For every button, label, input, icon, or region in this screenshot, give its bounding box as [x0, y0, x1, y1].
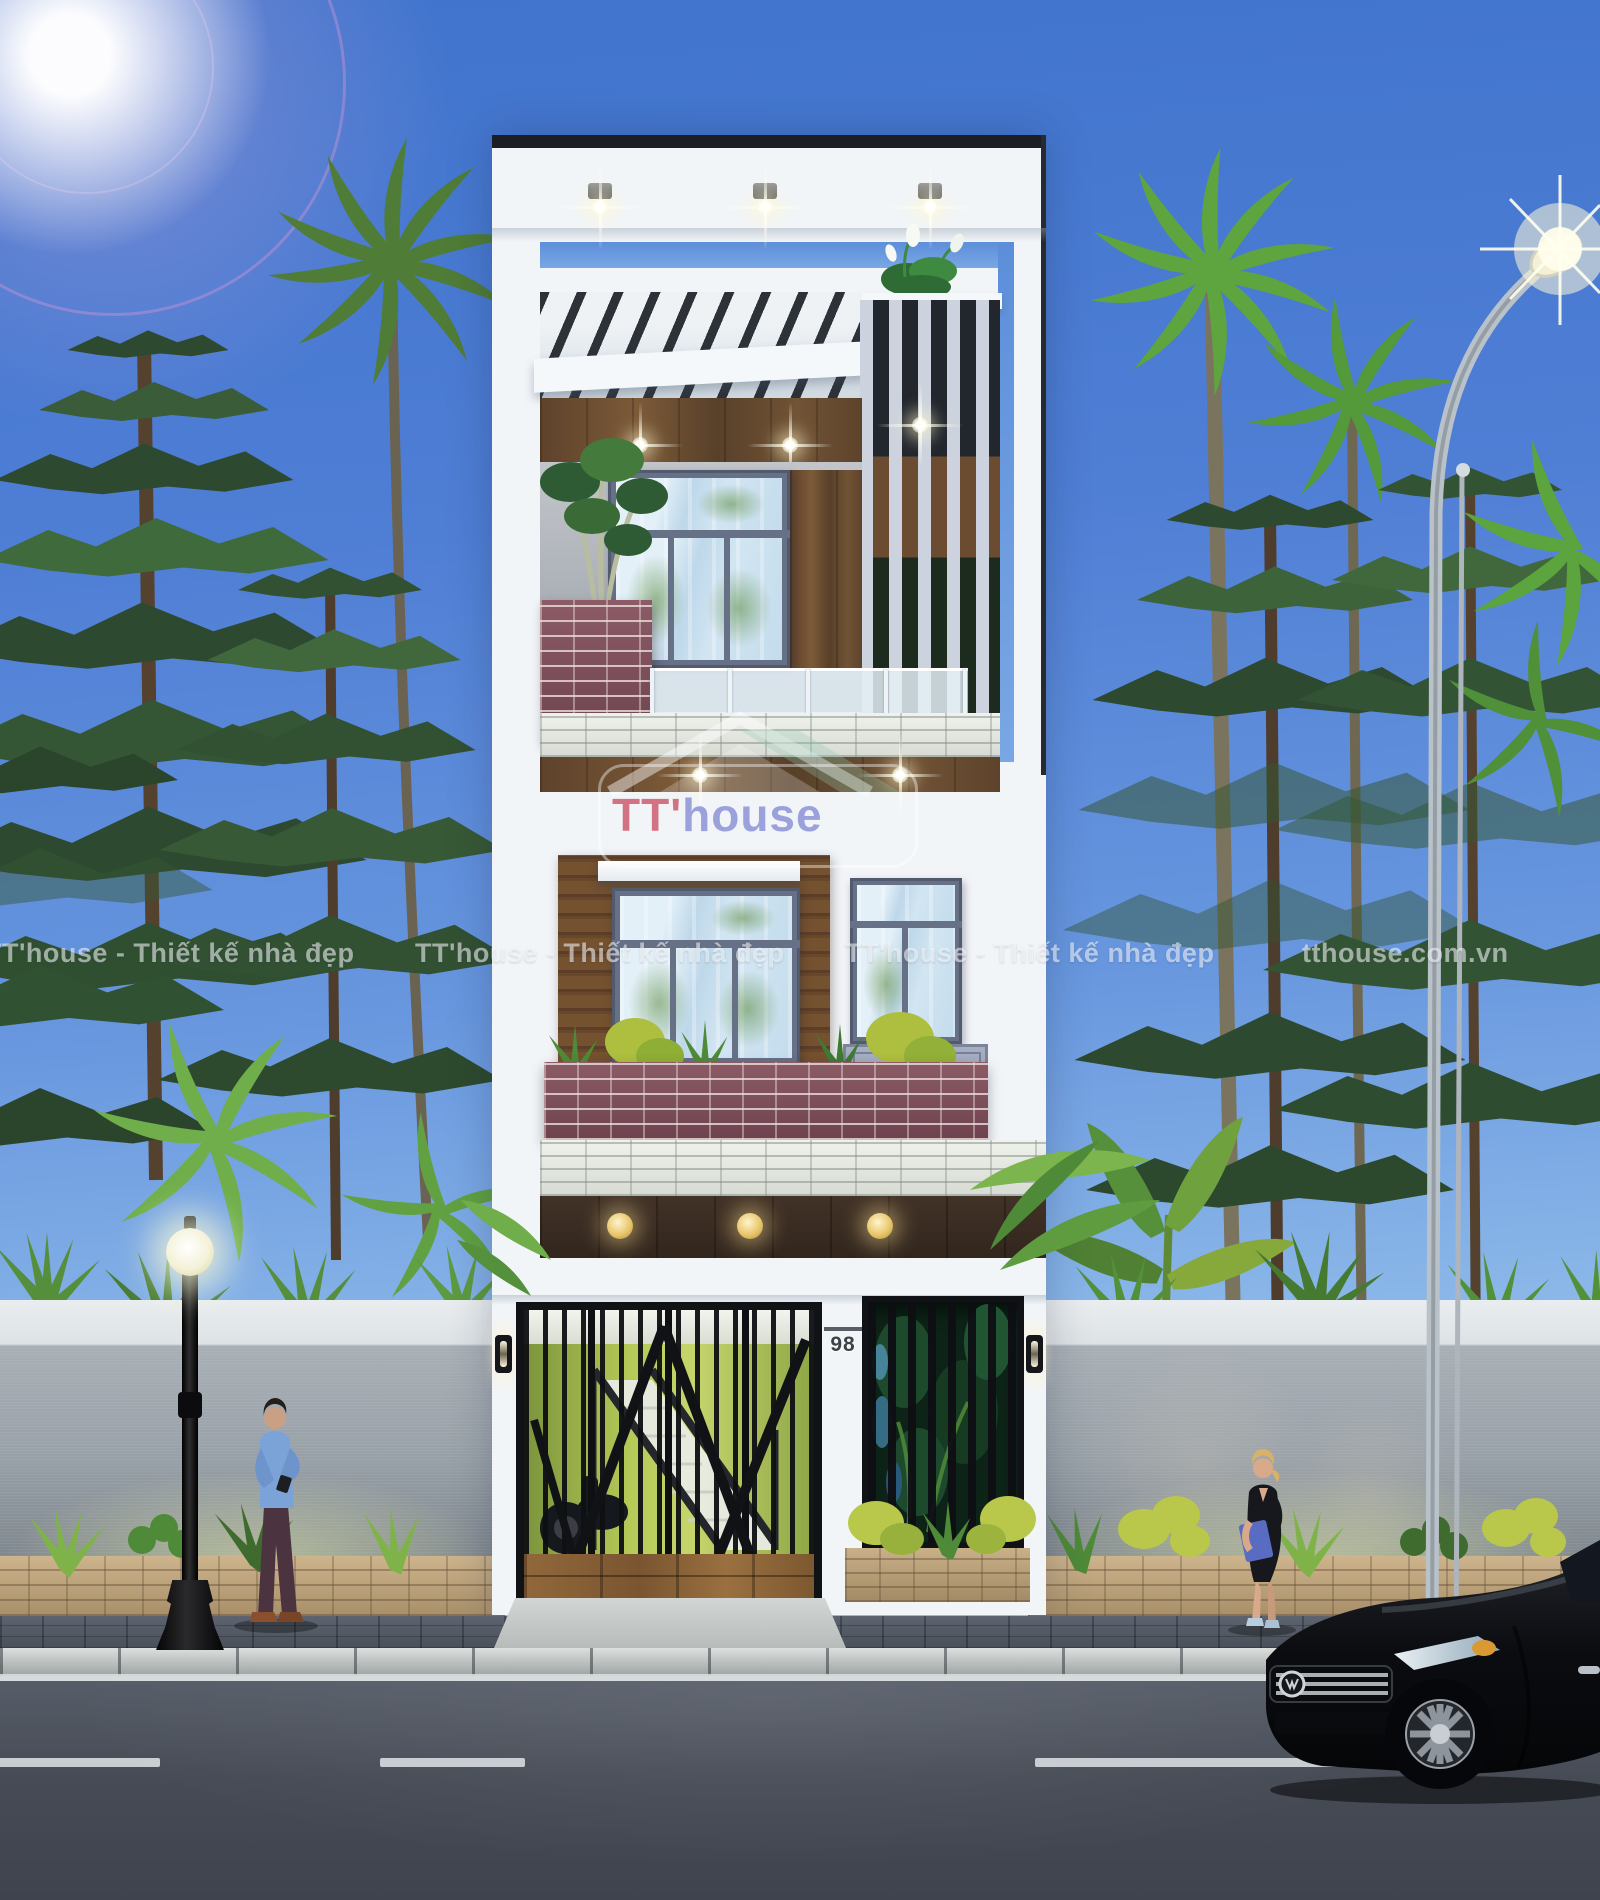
logo-wordmark: TT'house [612, 788, 912, 842]
street-light-pole [1370, 175, 1600, 1665]
peace-lily-plant [867, 223, 979, 301]
floor2-brick-planter [544, 1062, 988, 1140]
fin-tower-downlight [877, 382, 963, 468]
road-center-line [0, 1758, 160, 1767]
road-center-line [380, 1758, 525, 1767]
overhanging-fronds-left [455, 1180, 575, 1320]
fascia-light [607, 1213, 633, 1239]
downlight-flare [722, 164, 808, 250]
driveway-ramp [494, 1598, 846, 1648]
logo-suffix: house [682, 789, 822, 841]
lamp-post-globe [166, 1228, 214, 1276]
entrance-gate [516, 1302, 822, 1602]
watermark-website: tthouse.com.vn [1302, 938, 1509, 969]
louver-planter-plants [840, 1475, 1040, 1559]
pedestrian-man [228, 1378, 323, 1634]
pergola [540, 292, 862, 400]
watermark-tagline: TT'house - Thiết kế nhà đẹp [415, 938, 784, 969]
fascia-light [737, 1213, 763, 1239]
house-facade: 98 [492, 135, 1046, 1615]
roof-frame-edge [492, 135, 1046, 148]
watermark-tagline: TT'house - Thiết kế nhà đẹp [845, 938, 1214, 969]
watermark-tagline: TT'house - Thiết kế nhà đẹp [0, 938, 354, 969]
gate-diagonal-braces [524, 1310, 814, 1594]
gate-wood-panels [524, 1554, 814, 1600]
logo-prefix: TT' [612, 789, 682, 841]
lamp-post-collar [178, 1392, 202, 1418]
floor3-wood-wall [790, 470, 862, 668]
downlight-flare [557, 164, 643, 250]
scene: 98 [0, 0, 1600, 1900]
overhanging-fronds [850, 1130, 1170, 1350]
wall-sconce-left [495, 1335, 512, 1373]
side-sky-slot [998, 242, 1014, 762]
lamp-post-pole [182, 1266, 198, 1596]
black-car [1262, 1538, 1600, 1808]
